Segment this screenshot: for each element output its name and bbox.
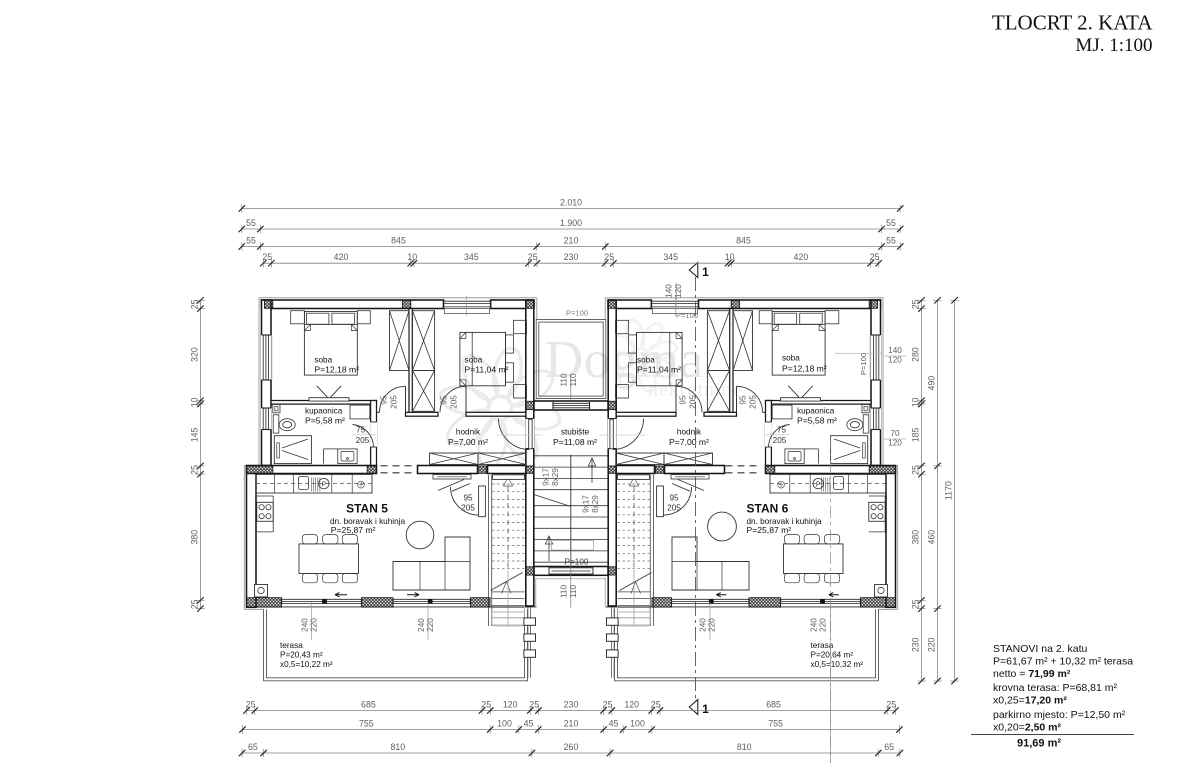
svg-text:8x29: 8x29	[551, 468, 560, 486]
svg-text:55: 55	[246, 218, 256, 228]
svg-text:230: 230	[564, 700, 579, 710]
svg-text:9x17: 9x17	[582, 495, 591, 513]
svg-text:685: 685	[766, 700, 781, 710]
svg-text:netto = 71,99 m²: netto = 71,99 m²	[993, 668, 1071, 680]
svg-text:P=11,08 m²: P=11,08 m²	[553, 437, 597, 447]
svg-text:25: 25	[911, 299, 921, 309]
svg-text:P=12,18 m²: P=12,18 m²	[314, 364, 359, 374]
svg-text:220: 220	[426, 618, 435, 632]
svg-text:P=5,58 m²: P=5,58 m²	[797, 416, 837, 426]
svg-text:1170: 1170	[944, 481, 954, 500]
svg-text:75: 75	[356, 425, 366, 434]
svg-text:240: 240	[810, 618, 819, 632]
svg-text:95: 95	[679, 395, 688, 405]
svg-text:25: 25	[870, 252, 880, 262]
svg-text:P=25,87 m²: P=25,87 m²	[747, 525, 792, 535]
svg-text:STAN 5: STAN 5	[346, 502, 388, 516]
svg-text:P=100: P=100	[676, 311, 698, 320]
svg-text:140: 140	[888, 346, 902, 355]
svg-text:soba: soba	[314, 355, 332, 364]
svg-text:205: 205	[667, 504, 681, 513]
svg-text:10: 10	[911, 397, 921, 407]
svg-text:25: 25	[529, 700, 539, 710]
svg-text:345: 345	[663, 252, 678, 262]
svg-text:280: 280	[911, 347, 921, 362]
svg-text:95: 95	[669, 494, 679, 503]
svg-text:stubište: stubište	[561, 428, 590, 437]
svg-text:P=11,04 m²: P=11,04 m²	[465, 364, 509, 374]
svg-text:95: 95	[440, 395, 449, 405]
svg-text:380: 380	[911, 530, 921, 545]
svg-text:25: 25	[190, 299, 200, 309]
svg-text:95: 95	[463, 494, 473, 503]
svg-text:10: 10	[725, 252, 735, 262]
svg-text:soba: soba	[465, 355, 483, 364]
svg-text:240: 240	[301, 618, 310, 632]
svg-text:25: 25	[886, 700, 896, 710]
svg-text:420: 420	[794, 252, 809, 262]
svg-text:230: 230	[564, 252, 579, 262]
svg-text:110: 110	[560, 373, 569, 386]
svg-text:320: 320	[190, 347, 200, 362]
svg-text:120: 120	[888, 356, 902, 365]
svg-text:210: 210	[564, 236, 579, 246]
svg-text:P=20,64 m²: P=20,64 m²	[811, 651, 854, 660]
svg-text:MJ. 1:100: MJ. 1:100	[1075, 35, 1152, 56]
svg-text:460: 460	[927, 530, 937, 545]
svg-text:8x29: 8x29	[591, 495, 600, 513]
svg-text:70: 70	[890, 429, 900, 438]
svg-text:25: 25	[190, 465, 200, 475]
svg-text:110: 110	[569, 373, 578, 386]
svg-text:krovna terasa: P=68,81 m²: krovna terasa: P=68,81 m²	[993, 682, 1118, 694]
svg-text:755: 755	[359, 719, 374, 729]
svg-text:120: 120	[624, 700, 639, 710]
svg-text:220: 220	[927, 637, 937, 652]
svg-text:205: 205	[450, 395, 459, 409]
svg-text:P=61,67 m² + 10,32 m² terasa: P=61,67 m² + 10,32 m² terasa	[993, 656, 1133, 668]
svg-text:205: 205	[749, 395, 758, 409]
svg-text:10: 10	[407, 252, 417, 262]
svg-text:55: 55	[886, 218, 896, 228]
svg-text:240: 240	[699, 618, 708, 632]
svg-text:205: 205	[356, 436, 370, 445]
svg-text:55: 55	[246, 236, 256, 246]
svg-text:845: 845	[736, 236, 751, 246]
svg-text:45: 45	[609, 719, 619, 729]
svg-text:P=100: P=100	[859, 353, 868, 375]
svg-text:91,69 m²: 91,69 m²	[1017, 738, 1061, 750]
svg-text:65: 65	[884, 742, 894, 752]
svg-text:810: 810	[390, 742, 405, 752]
svg-text:2.010: 2.010	[560, 198, 582, 208]
svg-text:205: 205	[461, 504, 475, 513]
svg-text:845: 845	[391, 236, 406, 246]
svg-text:75: 75	[777, 425, 787, 434]
svg-text:65: 65	[248, 742, 258, 752]
svg-text:parkirno mjesto: P=12,50 m²: parkirno mjesto: P=12,50 m²	[993, 709, 1126, 721]
svg-text:1.900: 1.900	[560, 218, 582, 228]
svg-text:25: 25	[246, 700, 256, 710]
svg-text:hodnik: hodnik	[456, 428, 481, 437]
svg-text:685: 685	[361, 700, 376, 710]
svg-text:145: 145	[190, 427, 200, 442]
svg-text:230: 230	[911, 637, 921, 652]
svg-text:95: 95	[739, 395, 748, 405]
svg-text:220: 220	[819, 618, 828, 632]
svg-text:P=7,00 m²: P=7,00 m²	[448, 437, 488, 447]
svg-text:490: 490	[927, 376, 937, 391]
svg-text:P=11,04 m²: P=11,04 m²	[637, 364, 681, 374]
svg-text:x0,5=10,22 m²: x0,5=10,22 m²	[280, 660, 333, 669]
svg-text:120: 120	[674, 284, 683, 298]
svg-text:STAN 6: STAN 6	[747, 502, 789, 516]
svg-text:120: 120	[888, 439, 902, 448]
svg-text:205: 205	[390, 395, 399, 409]
svg-text:soba: soba	[637, 355, 655, 364]
svg-text:120: 120	[503, 700, 518, 710]
svg-text:P: P	[321, 481, 326, 488]
svg-text:x0,5=10,32 m²: x0,5=10,32 m²	[811, 660, 864, 669]
svg-text:25: 25	[528, 252, 538, 262]
svg-text:1: 1	[702, 265, 709, 279]
svg-text:kupaonica: kupaonica	[797, 406, 835, 415]
svg-text:hodnik: hodnik	[677, 428, 702, 437]
svg-text:100: 100	[630, 719, 645, 729]
svg-text:P=12,18 m²: P=12,18 m²	[782, 363, 827, 373]
svg-text:220: 220	[708, 618, 717, 632]
svg-text:110: 110	[560, 585, 569, 598]
svg-text:220: 220	[310, 618, 319, 632]
svg-text:x0,25=17,20 m²: x0,25=17,20 m²	[993, 695, 1067, 707]
svg-text:kupaonica: kupaonica	[305, 406, 343, 415]
svg-text:25: 25	[190, 599, 200, 609]
svg-text:210: 210	[564, 719, 579, 729]
svg-text:P=25,87 m²: P=25,87 m²	[331, 525, 376, 535]
svg-text:260: 260	[564, 742, 579, 752]
svg-text:25: 25	[262, 252, 272, 262]
svg-text:STANOVI na 2. katu: STANOVI na 2. katu	[993, 643, 1088, 655]
svg-text:P: P	[816, 481, 821, 488]
svg-text:95: 95	[380, 395, 389, 405]
svg-text:25: 25	[603, 700, 613, 710]
svg-text:1: 1	[702, 702, 709, 716]
svg-text:240: 240	[417, 618, 426, 632]
svg-text:345: 345	[464, 252, 479, 262]
svg-text:terasa: terasa	[280, 641, 303, 650]
svg-text:140: 140	[665, 284, 674, 298]
svg-text:45: 45	[524, 719, 534, 729]
svg-text:P=20,43 m²: P=20,43 m²	[280, 651, 323, 660]
svg-text:110: 110	[569, 585, 578, 598]
svg-text:TLOCRT 2. KATA: TLOCRT 2. KATA	[992, 11, 1153, 35]
svg-text:55: 55	[886, 236, 896, 246]
svg-text:205: 205	[689, 395, 698, 409]
svg-text:420: 420	[334, 252, 349, 262]
svg-text:25: 25	[481, 700, 491, 710]
svg-text:755: 755	[768, 719, 783, 729]
svg-text:810: 810	[737, 742, 752, 752]
svg-text:185: 185	[911, 427, 921, 442]
svg-text:25: 25	[911, 599, 921, 609]
svg-text:205: 205	[773, 436, 787, 445]
svg-text:P=7,00 m²: P=7,00 m²	[669, 437, 709, 447]
svg-text:25: 25	[604, 252, 614, 262]
svg-text:P=100: P=100	[566, 309, 588, 318]
svg-text:380: 380	[190, 530, 200, 545]
svg-text:10: 10	[190, 397, 200, 407]
svg-text:100: 100	[497, 719, 512, 729]
svg-text:x0,20=2,50 m²: x0,20=2,50 m²	[993, 722, 1062, 734]
svg-text:9x17: 9x17	[542, 468, 551, 486]
svg-text:P=100: P=100	[565, 557, 589, 566]
svg-text:soba: soba	[782, 353, 800, 362]
svg-text:25: 25	[911, 465, 921, 475]
svg-text:25: 25	[651, 700, 661, 710]
svg-text:P=5,58 m²: P=5,58 m²	[305, 416, 345, 426]
